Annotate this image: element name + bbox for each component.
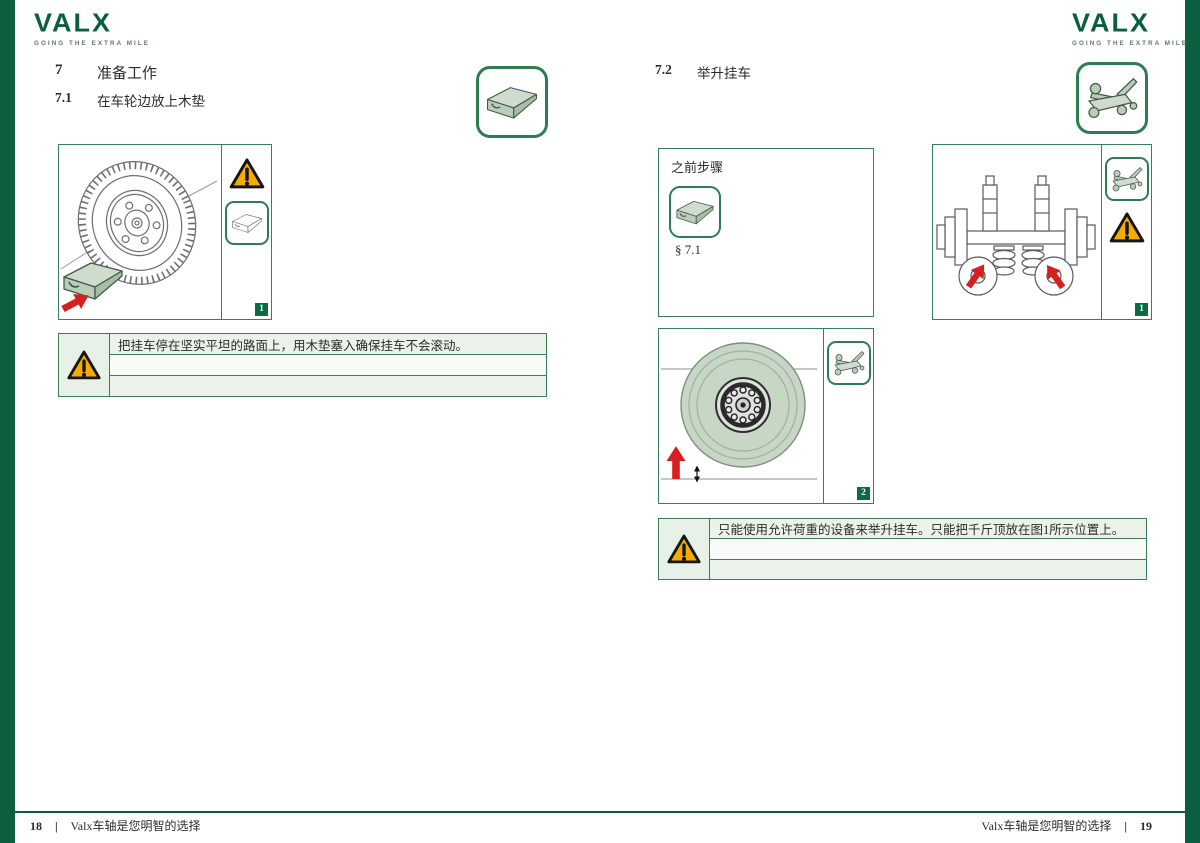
subsection-title: 在车轮边放上木垫 — [97, 90, 205, 110]
warning-triangle-icon — [1108, 211, 1146, 245]
previous-steps-reference: § 7.1 — [675, 242, 873, 258]
warning-rows: 只能使用允许荷重的设备来举升挂车。只能把千斤顶放在图1所示位置上。 — [710, 519, 1146, 579]
warning-text-row: 把挂车停在坚实平坦的路面上，用木垫塞入确保挂车不会滚动。 — [110, 334, 546, 354]
warning-empty-row — [710, 559, 1146, 579]
figure-sidebar — [824, 329, 873, 503]
subsection-heading-7-1: 7.1 在车轮边放上木垫 — [55, 90, 205, 110]
footer-slogan: Valx车轴是您明智的选择 — [70, 819, 200, 833]
warning-triangle-icon — [66, 349, 102, 382]
valx-logo-right: VALX GOING THE EXTRA MILE — [1072, 10, 1188, 47]
footer-left: 18 | Valx车轴是您明智的选择 — [30, 817, 200, 834]
lifted-wheel-illustration — [659, 329, 821, 501]
wheel-chock-icon — [675, 197, 715, 227]
clearance-dimension-arrow — [694, 466, 700, 483]
valx-logo: VALX GOING THE EXTRA MILE — [34, 10, 150, 47]
previous-steps-title: 之前步骤 — [671, 157, 873, 176]
warning-empty-row — [710, 538, 1146, 558]
page-number: 19 — [1140, 819, 1152, 833]
trolley-jack-icon-box — [1076, 62, 1148, 134]
valx-logo-wordmark: VALX — [34, 11, 150, 37]
figure-number-badge: 2 — [857, 487, 870, 500]
section-heading: 7 准备工作 — [55, 62, 157, 83]
trolley-jack-mini-icon-box — [827, 341, 871, 385]
subsection-heading-7-2: 7.2 举升挂车 — [655, 62, 751, 82]
figure-sidebar — [1102, 145, 1151, 319]
trolley-jack-icon — [1110, 166, 1144, 193]
axle-illustration — [933, 145, 1099, 317]
subsection-number: 7.1 — [55, 90, 97, 110]
previous-steps-box: 之前步骤 § 7.1 — [658, 148, 874, 317]
subsection-title: 举升挂车 — [697, 62, 751, 82]
figure-sidebar — [222, 145, 271, 319]
valx-logo-tagline: GOING THE EXTRA MILE — [1072, 40, 1188, 47]
section-title: 准备工作 — [97, 62, 157, 83]
wheel-chock-icon — [485, 82, 539, 122]
wheel-chock-illustration — [59, 145, 219, 317]
wheel-chock-icon-box — [476, 66, 548, 138]
page-edge-bar-left — [0, 0, 15, 843]
figure-wheel-chock: 1 — [58, 144, 272, 320]
trolley-jack-icon — [1084, 76, 1140, 121]
page-number: 18 — [30, 819, 42, 833]
valx-logo-tagline: GOING THE EXTRA MILE — [34, 40, 150, 47]
footer-separator: | — [1124, 819, 1127, 833]
figure-wheel-chock-drawing — [59, 145, 221, 319]
warning-empty-row — [110, 354, 546, 375]
red-arrow-icon — [666, 446, 685, 479]
warning-icon-cell — [59, 334, 110, 396]
trolley-jack-mini-icon-box — [1105, 157, 1149, 201]
figure-lifted-wheel: 2 — [658, 328, 874, 504]
warning-icon-cell — [659, 519, 710, 579]
wheel-chock-mini-icon-box — [225, 201, 269, 245]
warning-triangle-icon — [228, 157, 266, 191]
warning-empty-row — [110, 375, 546, 396]
warning-text-row: 只能使用允许荷重的设备来举升挂车。只能把千斤顶放在图1所示位置上。 — [710, 519, 1146, 538]
valx-logo-wordmark: VALX — [1072, 11, 1188, 37]
figure-number-badge: 1 — [255, 303, 268, 316]
footer-rule — [15, 811, 1185, 813]
footer-separator: | — [55, 819, 58, 833]
wheel-chock-icon — [231, 211, 263, 235]
wheel-chock-ref-icon-box — [669, 186, 721, 238]
trolley-jack-icon — [832, 350, 866, 377]
footer-right: Valx车轴是您明智的选择 | 19 — [981, 817, 1152, 834]
footer-slogan: Valx车轴是您明智的选择 — [981, 819, 1111, 833]
warning-table-left: 把挂车停在坚实平坦的路面上，用木垫塞入确保挂车不会滚动。 — [58, 333, 547, 397]
figure-number-badge: 1 — [1135, 303, 1148, 316]
subsection-number: 7.2 — [655, 62, 697, 82]
warning-rows: 把挂车停在坚实平坦的路面上，用木垫塞入确保挂车不会滚动。 — [110, 334, 546, 396]
warning-triangle-icon — [666, 533, 702, 566]
warning-table-right: 只能使用允许荷重的设备来举升挂车。只能把千斤顶放在图1所示位置上。 — [658, 518, 1147, 580]
page-edge-bar-right — [1185, 0, 1200, 843]
figure-axle-drawing — [933, 145, 1101, 319]
figure-lifted-wheel-drawing — [659, 329, 823, 503]
figure-axle-jack-points: 1 — [932, 144, 1152, 320]
section-number: 7 — [55, 62, 97, 83]
